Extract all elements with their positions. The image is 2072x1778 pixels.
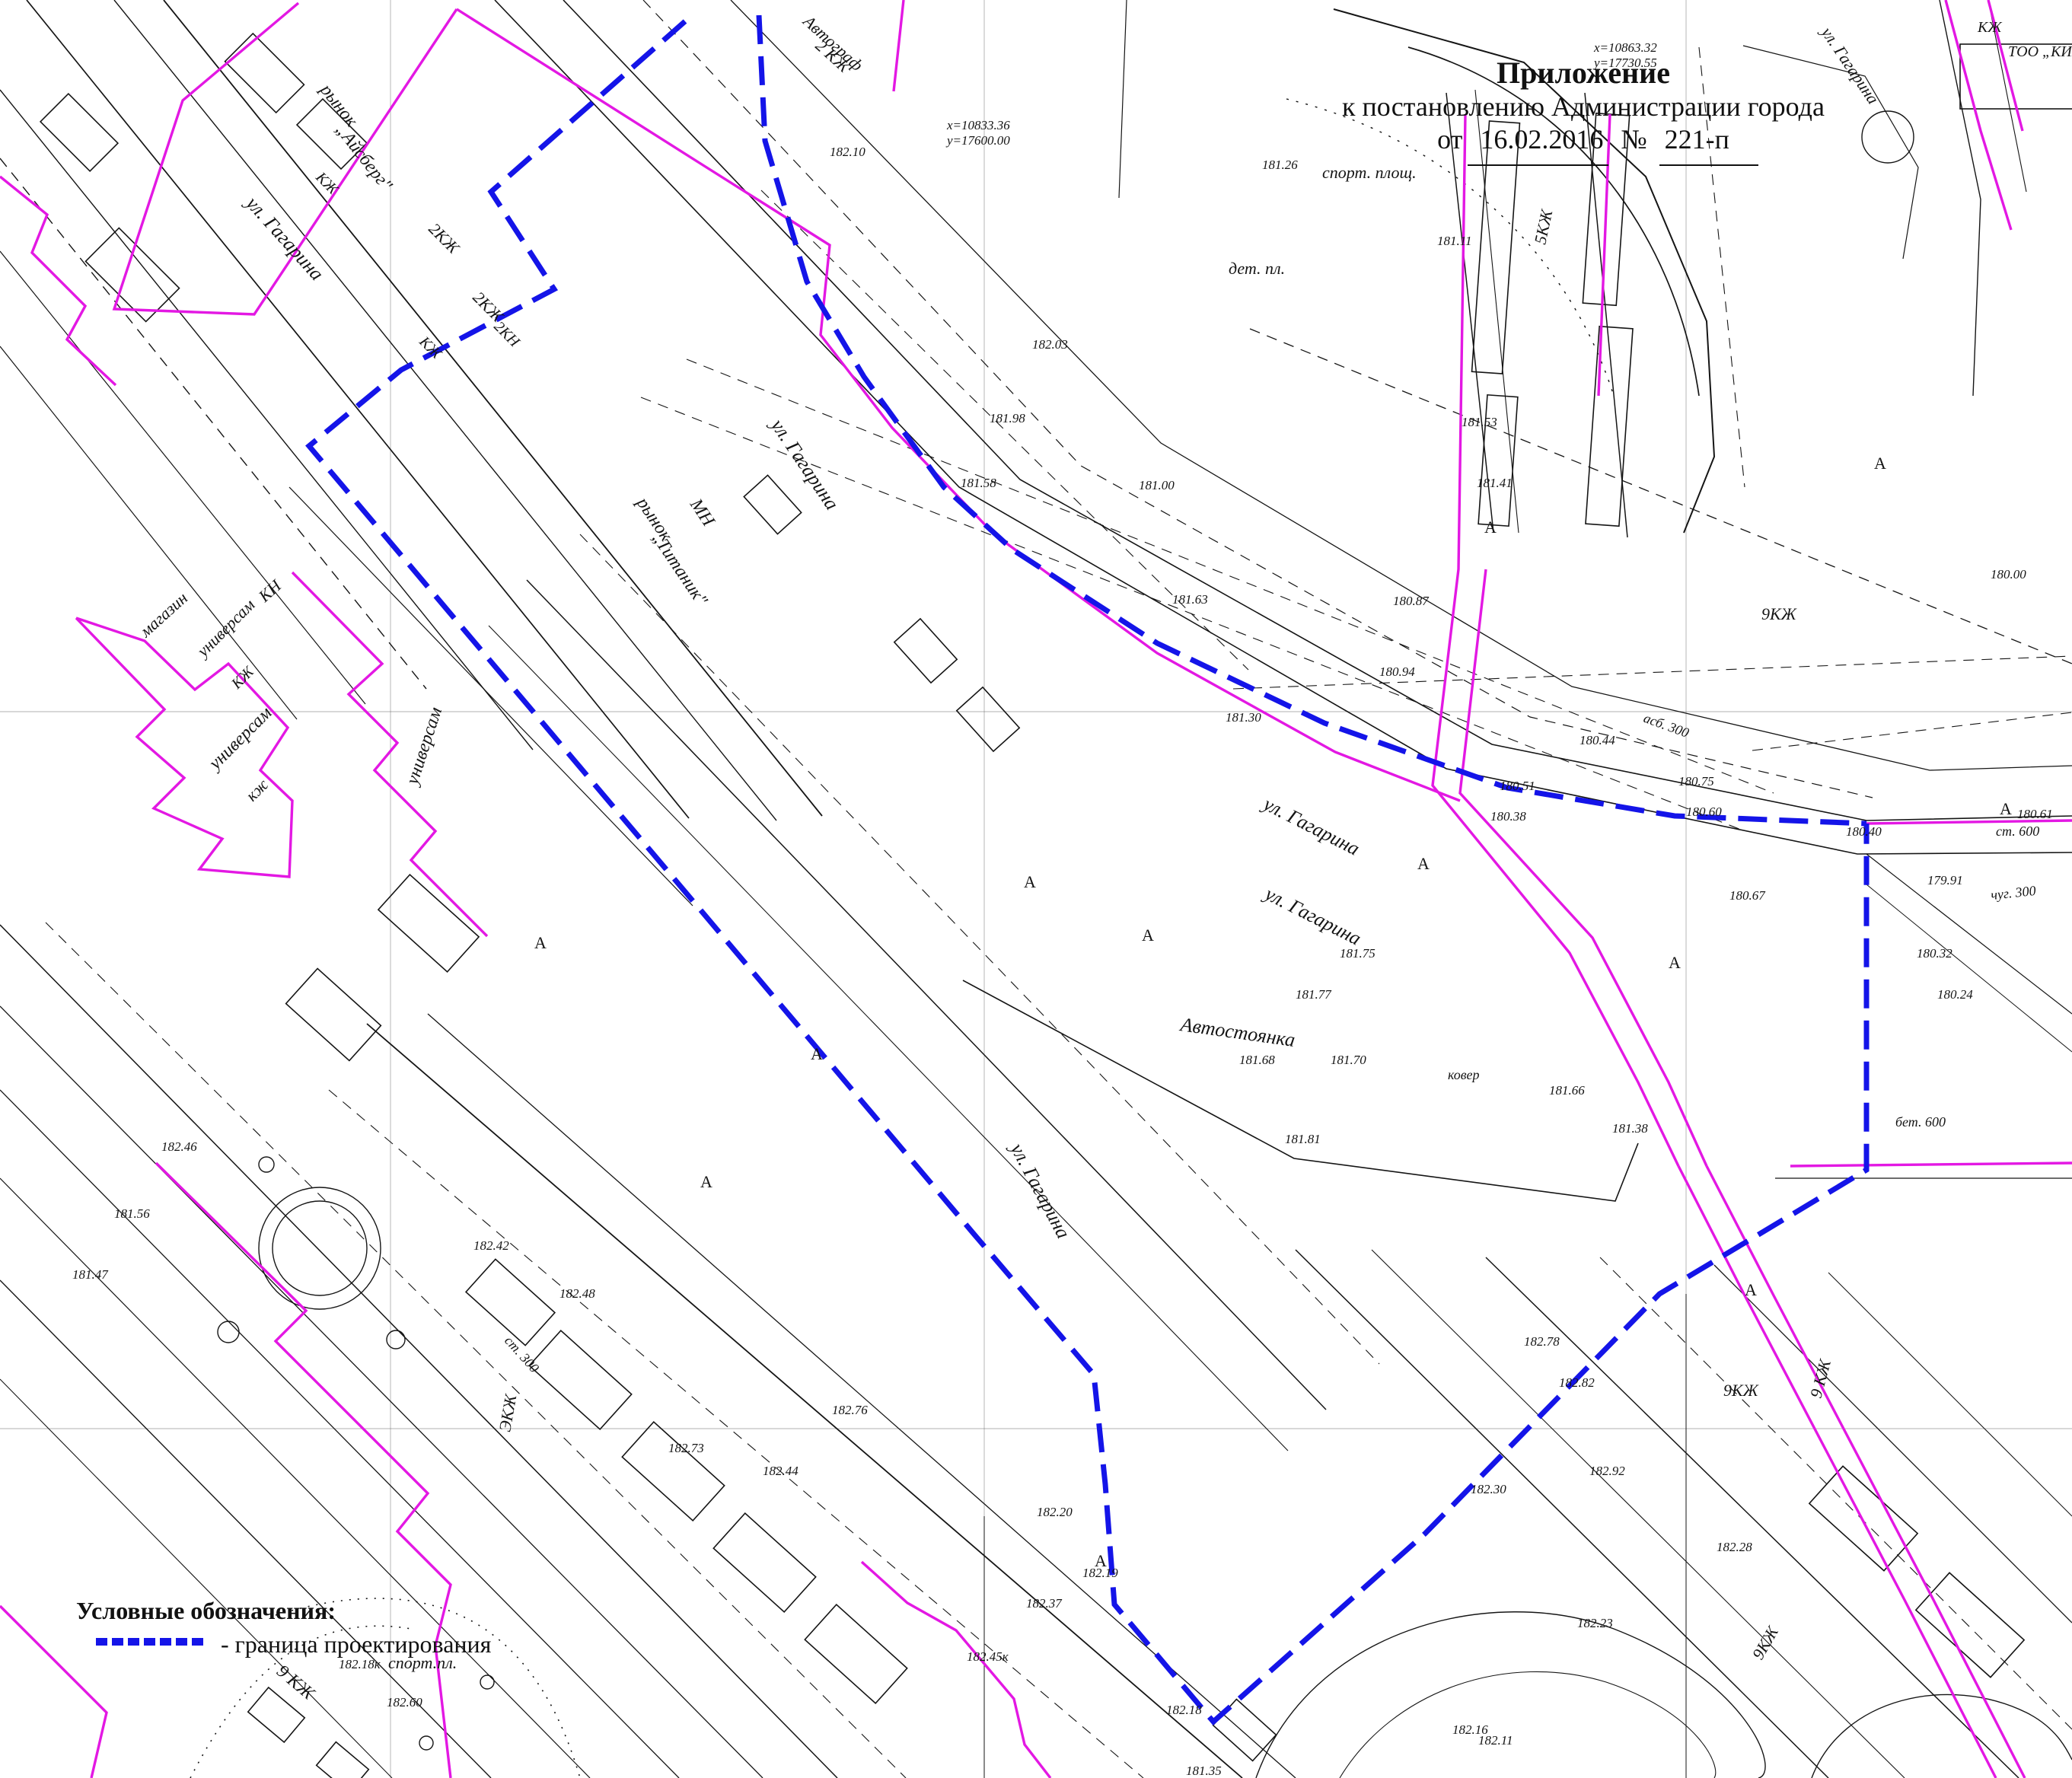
title-date-underline	[1468, 164, 1608, 166]
map-label: ЭКЖ	[495, 1392, 520, 1433]
contour-line	[276, 1598, 580, 1778]
utility-line	[0, 177, 116, 385]
base-line	[687, 359, 1774, 793]
elevation-mark: 182.16	[1452, 1722, 1488, 1737]
building-outline	[40, 94, 118, 171]
map-label: дет. пл.	[1229, 259, 1285, 278]
legend-heading: Условные обозначения:	[76, 1597, 336, 1625]
map-label: асб. 300	[1642, 710, 1691, 741]
elevation-mark: 182.37	[1026, 1596, 1063, 1611]
title-line1: Приложение	[1286, 55, 1880, 91]
elevation-mark: 181.58	[961, 476, 996, 490]
title-number-underline	[1659, 164, 1758, 166]
map-label: ТОО „КИН"	[2008, 43, 2072, 60]
utility-line	[0, 1606, 107, 1778]
map-label: спорт. площ.	[1322, 163, 1417, 182]
elevation-mark: 181.38	[1612, 1121, 1648, 1136]
base-line	[164, 0, 822, 816]
building-outline	[317, 1742, 369, 1778]
map-label: КЖ	[1977, 19, 2003, 36]
area-mark: А	[811, 1044, 823, 1063]
building-outline	[529, 1330, 631, 1429]
area-mark: А	[1095, 1551, 1107, 1570]
elevation-mark: 182.46	[161, 1139, 197, 1154]
base-line	[1250, 329, 2072, 664]
map-label: x=10833.36	[946, 118, 1010, 132]
elevation-mark: 180.87	[1393, 594, 1430, 608]
elevation-mark: 182.10	[830, 145, 865, 159]
elevation-mark: 181.47	[72, 1267, 109, 1282]
legend-boundary-label: - граница проектирования	[221, 1630, 491, 1659]
elevation-mark: 182.78	[1524, 1334, 1560, 1349]
map-label: x=10863.32	[1593, 40, 1657, 55]
elevation-mark: 180.67	[1729, 888, 1766, 903]
map-label: чуг. 300	[1990, 883, 2036, 903]
elevation-mark: 180.32	[1917, 946, 1952, 961]
area-mark: А	[534, 933, 547, 952]
elevation-mark: 182.18	[1166, 1703, 1202, 1717]
base-line	[0, 158, 426, 689]
building-outline	[1472, 121, 1520, 374]
elevation-mark: 182.18к	[339, 1657, 381, 1671]
legend-boundary-line-sample	[96, 1638, 204, 1646]
building-outline	[1916, 1572, 2024, 1677]
base-line	[1475, 90, 1519, 533]
base-line	[0, 1006, 763, 1778]
circle-feature	[273, 1201, 367, 1295]
map-label: ул. Гагарина	[1005, 1138, 1075, 1243]
area-mark: А	[2000, 799, 2012, 818]
contour-line	[1812, 1694, 2072, 1778]
circle-feature	[259, 1187, 381, 1309]
elevation-mark: 181.98	[990, 411, 1025, 425]
area-mark: А	[700, 1172, 712, 1191]
map-label: ст. 600	[1996, 824, 2039, 839]
elevation-mark: 181.81	[1285, 1132, 1321, 1146]
map-label: МН	[685, 495, 719, 531]
map-label: бет. 600	[1895, 1114, 1946, 1130]
area-mark: А	[1024, 872, 1036, 891]
circle-feature	[419, 1736, 433, 1750]
building-outline	[1809, 1466, 1917, 1570]
map-label: 2КЖ	[425, 219, 464, 258]
elevation-mark: 181.68	[1239, 1053, 1275, 1067]
elevation-mark: 180.24	[1937, 987, 1973, 1002]
title-line3: от 16.02.2016 № 221-п	[1286, 123, 1880, 155]
circle-feature	[218, 1321, 239, 1343]
elevation-mark: 181.35	[1186, 1764, 1222, 1778]
map-label: кж	[242, 775, 273, 805]
elevation-mark: 182.30	[1471, 1482, 1506, 1496]
elevation-mark: 180.44	[1580, 733, 1615, 747]
elevation-mark: 181.00	[1139, 478, 1175, 492]
area-mark: А	[1874, 454, 1886, 473]
map-label: КН	[254, 575, 285, 606]
base-line	[1714, 1265, 2072, 1623]
area-mark: А	[1142, 926, 1154, 945]
base-line	[489, 626, 1288, 1451]
map-label: рынок	[315, 79, 362, 131]
map-label: 5КЖ	[1530, 207, 1556, 246]
building-outline	[378, 875, 479, 972]
elevation-mark: 180.61	[2017, 807, 2053, 821]
circle-feature	[259, 1157, 274, 1172]
base-line	[0, 251, 365, 704]
base-line	[27, 0, 689, 818]
utility-line	[862, 1562, 1050, 1778]
map-label: КЖ	[312, 168, 343, 199]
elevation-mark: 181.53	[1462, 415, 1497, 429]
base-line	[527, 580, 1326, 1410]
building-outline	[466, 1259, 555, 1345]
building-outline	[1586, 327, 1633, 526]
design-boundary-line	[309, 21, 1866, 1722]
building-outline	[957, 687, 1019, 751]
elevation-mark: 182.45к	[967, 1649, 1009, 1664]
base-line	[0, 1379, 392, 1778]
base-line	[114, 0, 776, 820]
contour-line	[1256, 1612, 1765, 1778]
utility-line	[1707, 1166, 2025, 1778]
elevation-mark: 180.60	[1686, 805, 1722, 819]
utility-line	[457, 9, 994, 534]
elevation-mark: 182.92	[1589, 1464, 1625, 1478]
area-mark: А	[1417, 854, 1430, 873]
base-line	[1752, 712, 2072, 750]
elevation-mark: 181.41	[1477, 476, 1513, 490]
base-line	[0, 1090, 679, 1778]
elevation-mark: 182.28	[1717, 1540, 1752, 1554]
map-page: 182.10182.03181.98181.58181.63181.30181.…	[0, 0, 2072, 1778]
base-line	[1372, 1250, 1905, 1778]
map-label: ст. 300	[502, 1333, 542, 1375]
map-label: 9КЖ	[1723, 1381, 1759, 1400]
map-label: „Титаник"	[648, 529, 712, 610]
building-outline	[225, 33, 304, 113]
utility-line	[76, 618, 292, 877]
circle-feature	[480, 1675, 494, 1689]
elevation-mark: 181.26	[1262, 158, 1298, 172]
map-label: ул. Гагарина	[765, 413, 843, 515]
base-line	[963, 980, 1638, 1201]
title-block: Приложение к постановлению Администрации…	[1286, 55, 1880, 155]
area-mark: А	[1484, 518, 1497, 537]
elevation-mark: 181.30	[1226, 710, 1261, 725]
elevation-mark: 180.38	[1490, 809, 1526, 824]
elevation-mark: 179.91	[1927, 873, 1963, 887]
map-label: y=17600.00	[945, 133, 1010, 148]
elevation-mark: 181.75	[1340, 946, 1375, 961]
elevation-mark: 182.60	[387, 1695, 422, 1709]
map-label: 9КЖ	[1761, 604, 1797, 623]
elevation-mark: 182.23	[1577, 1616, 1613, 1630]
map-label: ковер	[1448, 1067, 1480, 1082]
area-mark: А	[1669, 953, 1681, 972]
map-label: ул. Гагарина	[1258, 792, 1363, 860]
base-line	[1828, 1273, 2072, 1516]
elevation-mark: 182.76	[832, 1403, 868, 1417]
building-outline	[622, 1422, 724, 1521]
elevation-mark: 181.56	[114, 1206, 150, 1221]
building-outline	[713, 1513, 815, 1612]
building-outline	[894, 619, 957, 683]
elevation-mark: 180.51	[1500, 779, 1535, 793]
elevation-mark: 180.40	[1846, 824, 1882, 839]
map-label: Автостоянка	[1178, 1013, 1296, 1051]
base-line	[1119, 0, 1127, 198]
base-line	[1866, 884, 2072, 1052]
title-line2: к постановлению Администрации города	[1286, 91, 1880, 123]
elevation-mark: 180.75	[1678, 774, 1714, 789]
building-outline	[85, 228, 179, 321]
elevation-mark: 182.03	[1032, 337, 1068, 352]
utility-line	[1460, 569, 1707, 1166]
elevation-mark: 181.66	[1549, 1083, 1585, 1098]
base-line	[1233, 656, 2072, 689]
circle-feature	[387, 1330, 405, 1349]
map-label: ул. Гагарина	[1260, 881, 1365, 950]
elevation-mark: 182.48	[559, 1286, 595, 1301]
elevation-mark: 180.00	[1991, 567, 2026, 582]
utility-line	[894, 0, 904, 91]
map-label: магазин	[135, 588, 191, 642]
elevation-mark: 181.77	[1296, 987, 1332, 1002]
map-label: универсам	[402, 705, 446, 789]
elevation-mark: 182.82	[1559, 1375, 1595, 1390]
utility-line	[292, 572, 487, 936]
elevation-mark: 181.70	[1331, 1053, 1366, 1067]
map-canvas: 182.10182.03181.98181.58181.63181.30181.…	[0, 0, 2072, 1778]
utility-line	[1433, 114, 1678, 1166]
utility-line	[114, 3, 457, 314]
utility-line	[1678, 1166, 1996, 1778]
utility-line	[1790, 1163, 2072, 1166]
base-line	[1585, 93, 1627, 537]
building-outline	[744, 475, 801, 534]
map-label: 9 КЖ	[273, 1662, 318, 1705]
map-label: универсам	[192, 595, 258, 661]
elevation-mark: 180.94	[1379, 664, 1415, 679]
elevation-mark: 182.20	[1037, 1505, 1073, 1519]
building-outline	[286, 968, 381, 1060]
area-mark: А	[1745, 1280, 1757, 1299]
map-label: КЖ	[416, 333, 446, 363]
elevation-mark: 181.11	[1437, 234, 1472, 248]
base-line	[367, 1024, 1242, 1778]
elevation-mark: 182.73	[668, 1441, 704, 1455]
building-outline	[805, 1604, 907, 1703]
elevation-mark: 182.42	[473, 1238, 509, 1253]
elevation-mark: 182.44	[763, 1464, 799, 1478]
contour-line	[1340, 1671, 1716, 1778]
elevation-mark: 181.63	[1172, 592, 1208, 607]
base-line	[1600, 1257, 2072, 1729]
